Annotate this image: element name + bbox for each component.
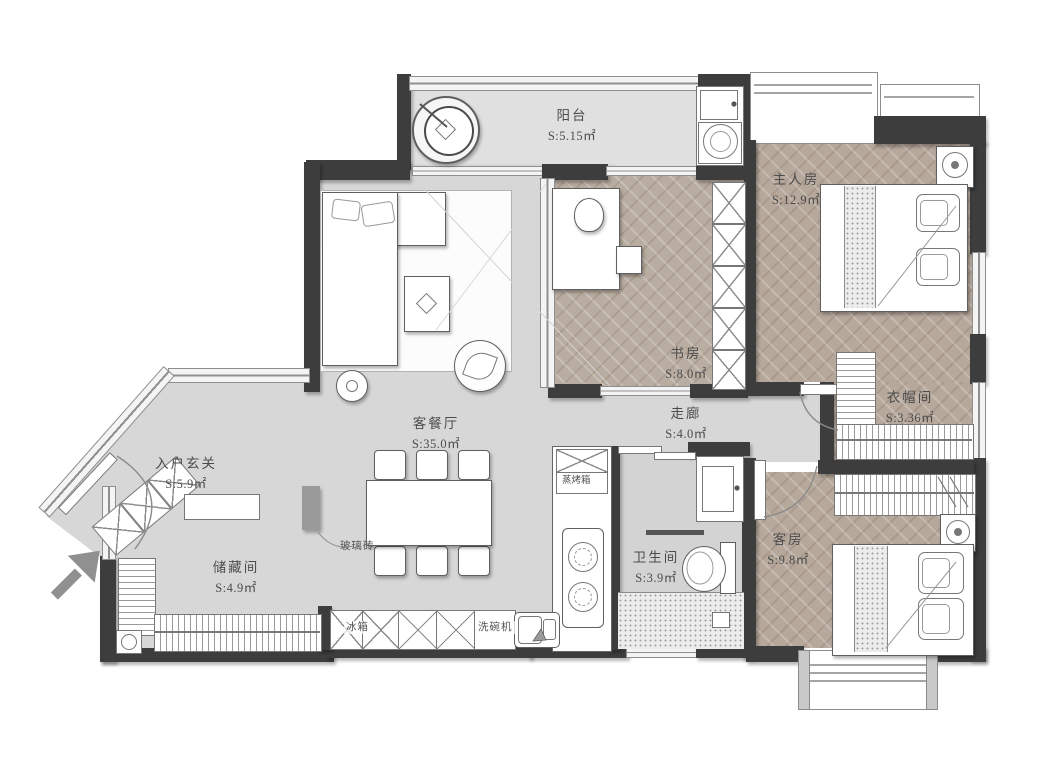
- study-bottom-wall-left: [548, 384, 602, 398]
- study-bookcase-cell: [712, 266, 746, 308]
- steam-oven-label: 蒸烤箱: [560, 475, 593, 488]
- balcony-top-window: [409, 76, 703, 91]
- room-area: S:4.9㎡: [176, 577, 296, 596]
- washing-machine-drum-inner: [710, 131, 731, 152]
- fridge-label: 冰箱: [344, 621, 371, 634]
- master-top-right-window: [880, 84, 980, 118]
- kitchen-cabinet: [436, 610, 476, 650]
- room-name: 书房: [626, 342, 746, 362]
- room-name: 主人房: [736, 168, 856, 188]
- steam-oven-cabinet: [556, 449, 608, 473]
- glass-brick-label: 玻璃砖: [338, 540, 377, 553]
- guest-wardrobe: [834, 474, 976, 516]
- room-name: 衣帽间: [850, 386, 970, 406]
- room-area: S:8.0㎡: [626, 363, 746, 382]
- room-area: S:4.0㎡: [626, 423, 746, 442]
- dining-chair: [416, 546, 448, 576]
- study-chair: [574, 198, 604, 232]
- dining-chair: [374, 546, 406, 576]
- cooktop-burner-1-inner: [574, 548, 592, 566]
- room-area: S:9.8㎡: [728, 549, 848, 568]
- cooktop-burner-2-inner: [574, 588, 592, 606]
- room-label-balcony: 阳台 S:5.15㎡: [512, 104, 632, 144]
- room-label-bathroom: 卫生间 S:3.9㎡: [596, 546, 716, 586]
- bathroom-washbasin: [702, 466, 734, 512]
- entry-top-window: [168, 368, 310, 383]
- master-top-right-window-line: [884, 96, 974, 98]
- room-label-cloakroom: 衣帽间 S:3.36㎡: [850, 386, 970, 426]
- master-bottom-wall: [748, 382, 804, 396]
- storage-living-wall: [302, 486, 320, 530]
- cloakroom-hanger-rod: [836, 439, 972, 441]
- guest-pillow-2-inner: [922, 604, 950, 634]
- floor-lamp-inner: [346, 380, 358, 392]
- guest-top-wall: [818, 460, 974, 474]
- room-label-entry-foyer: 入户玄关 S:5.9㎡: [126, 452, 246, 492]
- room-name: 走廊: [626, 402, 746, 422]
- kitchen-sink-basin-right: [543, 619, 556, 640]
- guest-bay-line2: [806, 672, 928, 674]
- room-label-corridor: 走廊 S:4.0㎡: [626, 402, 746, 442]
- laundry-basin: [700, 90, 738, 120]
- balcony-sliding-door: [412, 166, 546, 176]
- storage-rack-rod: [154, 631, 320, 633]
- laundry-top-wall: [698, 74, 746, 86]
- guest-door-leaf: [754, 460, 766, 520]
- room-label-living-dining: 客餐厅 S:35.0㎡: [376, 412, 496, 452]
- room-name: 入户玄关: [126, 452, 246, 472]
- master-right-window: [972, 252, 986, 338]
- master-bay-window-line2: [754, 92, 872, 94]
- entry-bench: [184, 494, 260, 520]
- guest-bottom-wall-left: [746, 646, 804, 662]
- room-area: S:3.9㎡: [596, 567, 716, 586]
- room-name: 卫生间: [596, 546, 716, 566]
- guest-nightstand-lamp-dot: [954, 528, 962, 536]
- dining-chair: [416, 450, 448, 480]
- guest-bay-jamb-right: [926, 650, 938, 710]
- master-door-leaf: [800, 384, 840, 395]
- dishwasher-label: 洗碗机: [476, 621, 515, 634]
- room-name: 客餐厅: [376, 412, 496, 432]
- study-balcony-sliding-door: [606, 166, 700, 176]
- bathroom-shelf: [646, 530, 704, 535]
- study-desk-return: [616, 246, 642, 274]
- guest-pillow-1-inner: [922, 558, 950, 588]
- kitchen-sink-basin-left: [518, 616, 542, 644]
- floor-plan: 阳台 S:5.15㎡ 主人房 S:12.9㎡ 书房 S:8.0㎡ 走廊 S:4.…: [0, 0, 1060, 762]
- balcony-living-corner-wall: [306, 160, 410, 180]
- master-bay-window: [750, 72, 878, 144]
- dining-table: [366, 480, 492, 546]
- bathroom-top-wall: [688, 442, 750, 456]
- study-corridor-sliding-door: [600, 386, 694, 396]
- master-nightstand-lamp-dot: [951, 161, 959, 169]
- cloakroom-right-window: [972, 382, 986, 462]
- shower-drain: [712, 612, 730, 628]
- master-pillow-2-inner: [920, 254, 948, 280]
- master-bay-window-line: [754, 84, 872, 86]
- room-label-storage: 储藏间 S:4.9㎡: [176, 556, 296, 596]
- room-name: 阳台: [512, 104, 632, 124]
- storage-corner-unit-dot: [121, 634, 137, 650]
- room-label-guest-room: 客房 S:9.8㎡: [728, 528, 848, 568]
- room-area: S:35.0㎡: [376, 433, 496, 452]
- room-name: 客房: [728, 528, 848, 548]
- guest-bed-blanket: [854, 546, 888, 652]
- living-left-wall: [304, 162, 320, 392]
- room-area: S:12.9㎡: [736, 189, 856, 208]
- room-label-study: 书房 S:8.0㎡: [626, 342, 746, 382]
- room-area: S:5.9㎡: [126, 473, 246, 492]
- dining-chair: [458, 450, 490, 480]
- storage-shelf-left: [118, 558, 156, 636]
- guest-bay-line3: [806, 680, 928, 682]
- bathroom-sliding-door-b: [654, 452, 696, 460]
- guest-bay-line1: [806, 664, 928, 666]
- room-name: 储藏间: [176, 556, 296, 576]
- kitchen-cabinet: [398, 610, 438, 650]
- dining-chair: [374, 450, 406, 480]
- storage-rack-bottom: [154, 614, 322, 652]
- room-area: S:3.36㎡: [850, 407, 970, 426]
- guest-wardrobe-rod: [834, 492, 974, 494]
- master-pillow-1-inner: [920, 200, 948, 226]
- cloakroom-wardrobe-rack: [836, 424, 974, 460]
- entry-arrow-shaft: [51, 568, 82, 599]
- dining-chair: [458, 546, 490, 576]
- room-area: S:5.15㎡: [512, 125, 632, 144]
- room-label-master-bedroom: 主人房 S:12.9㎡: [736, 168, 856, 208]
- right-wall-mid: [970, 334, 986, 384]
- study-bookcase-cell: [712, 224, 746, 266]
- guest-bay-jamb-left: [798, 650, 810, 710]
- sofa-cushion-1: [331, 198, 361, 221]
